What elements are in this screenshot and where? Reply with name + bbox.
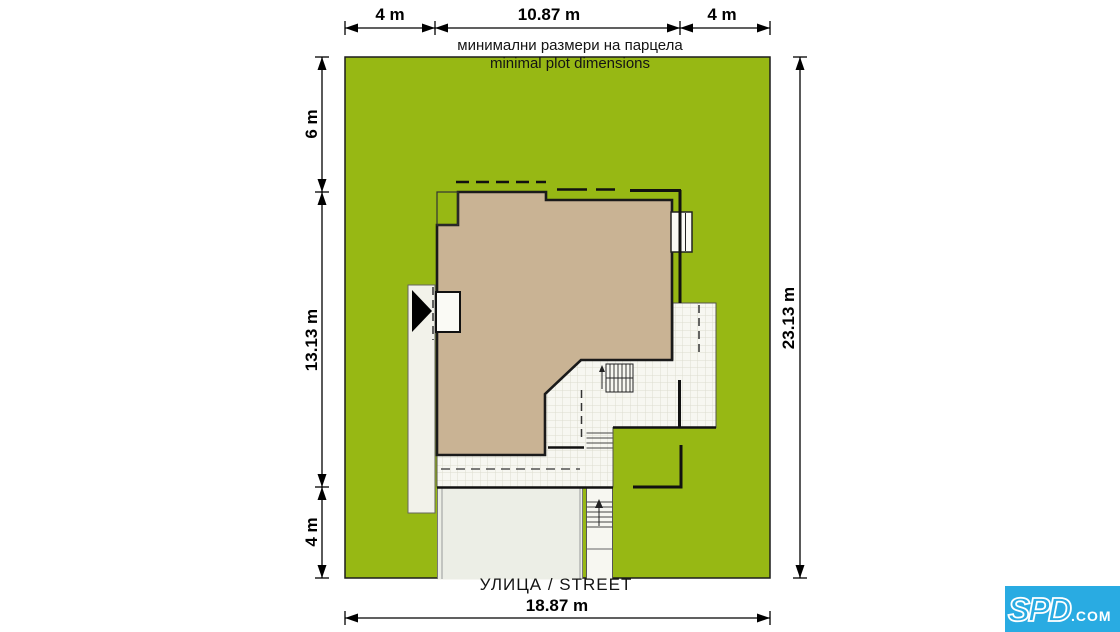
driveway	[437, 487, 583, 580]
logo-brand-text: SPD	[1008, 591, 1071, 628]
dim-left-mid: 13.13 m	[302, 309, 321, 371]
dim-right-full: 23.13 m	[779, 287, 798, 349]
dim-bottom-full: 18.87 m	[526, 596, 588, 615]
dim-left-bottom: 4 m	[302, 517, 321, 546]
site-plan-canvas: 4 m 10.87 m 4 m 6 m 13.13 m 4 m 23.13 m …	[0, 0, 1120, 632]
dim-left-top: 6 m	[302, 109, 321, 138]
site-plan-drawing: 4 m 10.87 m 4 m 6 m 13.13 m 4 m 23.13 m …	[0, 0, 1120, 632]
plot-note-bulgarian: минимални размери на парцела	[457, 37, 683, 54]
logo-suffix-text: .COM	[1071, 608, 1112, 624]
dim-top-left: 4 m	[375, 5, 404, 24]
dim-top-right: 4 m	[707, 5, 736, 24]
logo[interactable]: SPD .COM	[1005, 586, 1120, 632]
plot-note-english: minimal plot dimensions	[490, 55, 650, 72]
dim-top-mid: 10.87 m	[518, 5, 580, 24]
street-label: УЛИЦА / STREET	[480, 575, 633, 594]
entrance-porch	[436, 292, 460, 332]
